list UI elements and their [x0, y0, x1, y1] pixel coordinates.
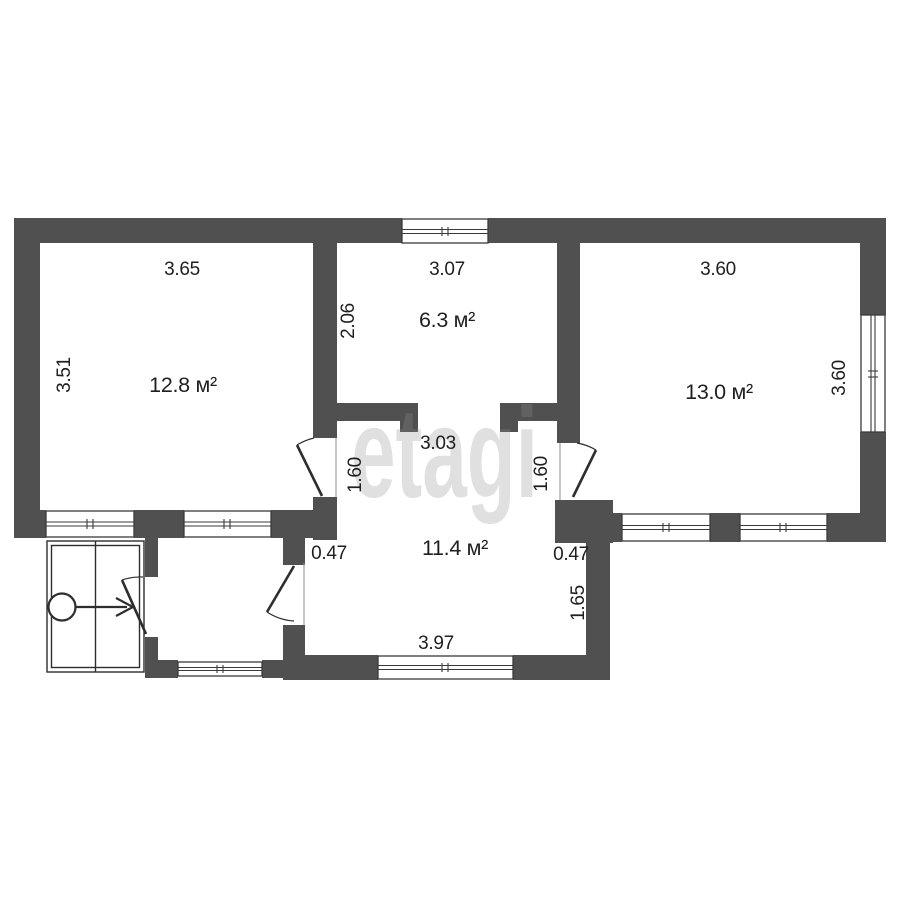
window-bedroom-bottom-1 [622, 514, 710, 541]
wall-hall-bottom-b [262, 660, 290, 678]
main-left-notch-label: 0.47 [311, 543, 347, 564]
window-frame [402, 219, 488, 243]
window-living-bottom-2 [184, 511, 271, 537]
door-hall-to-main [267, 563, 304, 625]
wall-living-bottom-c [271, 510, 337, 538]
floor-plan-image: etagi 3.65 3.51 12.8 м² 3.07 2.06 6.3 м²… [0, 0, 900, 900]
wall-bedroom-bottom-a [580, 513, 622, 542]
main-top-width-label: 3.03 [420, 433, 456, 454]
door-swing-arc [297, 438, 314, 445]
bedroom-height-label: 3.60 [829, 360, 850, 396]
floor-plan-svg: etagi 3.65 3.51 12.8 м² 3.07 2.06 6.3 м²… [0, 0, 900, 900]
door-living-room [297, 438, 336, 497]
wall-bedroom-bottom-b [710, 513, 740, 542]
wall-partition-kitchen-bedroom [557, 218, 580, 443]
door-bedroom [560, 443, 596, 500]
window-frame [378, 656, 513, 679]
door-entrance [122, 577, 146, 634]
window-frame [184, 511, 271, 537]
main-bottom-width-label: 3.97 [418, 633, 454, 654]
wall-top-left [14, 218, 402, 243]
window-bedroom-right [861, 315, 885, 432]
door-leaf [573, 450, 596, 497]
door-swing-arc [267, 612, 294, 621]
window-frame [178, 662, 262, 676]
door-leaf [297, 445, 322, 496]
wall-partition-living-upper [313, 218, 337, 438]
main-right-door-label: 1.60 [531, 456, 552, 492]
main-right-wall-label: 1.65 [568, 585, 589, 621]
bedroom-area-label: 13.0 м² [685, 380, 753, 404]
wall-living-bottom-b [134, 510, 184, 538]
door-swing-arc [577, 443, 596, 450]
window-frame [46, 511, 134, 537]
window-kitchen-top [402, 219, 488, 243]
kitchen-width-label: 3.07 [429, 259, 465, 280]
window-frame [622, 514, 710, 541]
kitchen-area-label: 6.3 м² [419, 308, 475, 332]
main-area-label: 11.4 м² [422, 536, 488, 560]
bedroom-width-label: 3.60 [700, 259, 736, 280]
wall-hall-bottom-a [145, 660, 178, 678]
kitchen-height-label: 2.06 [338, 303, 359, 339]
wall-living-bottom-a [14, 510, 46, 538]
main-left-door-label: 1.60 [345, 457, 366, 493]
wall-bedroom-bottom-c [827, 513, 886, 542]
wall-hall-right-upper [283, 537, 305, 565]
window-hall-bottom [178, 662, 262, 676]
window-main-bottom [378, 656, 513, 679]
wall-outer-right-upper [860, 218, 886, 315]
door-leaf [267, 566, 294, 612]
wall-main-bottom-a [283, 655, 378, 680]
wall-top-right [488, 218, 886, 243]
entrance-point-icon [49, 594, 76, 621]
wall-hall-left-upper [145, 538, 158, 577]
main-right-notch-label: 0.47 [553, 544, 589, 565]
living-area-label: 12.8 м² [149, 373, 217, 397]
living-width-label: 3.65 [164, 259, 200, 280]
wall-main-bottom-b [513, 655, 610, 680]
window-bedroom-bottom-2 [740, 514, 827, 541]
wall-outer-left [14, 218, 40, 538]
window-frame [740, 514, 827, 541]
window-frame [861, 315, 885, 432]
entrance-marker [49, 594, 134, 621]
window-living-bottom-1 [46, 511, 134, 537]
living-height-label: 3.51 [54, 357, 75, 393]
